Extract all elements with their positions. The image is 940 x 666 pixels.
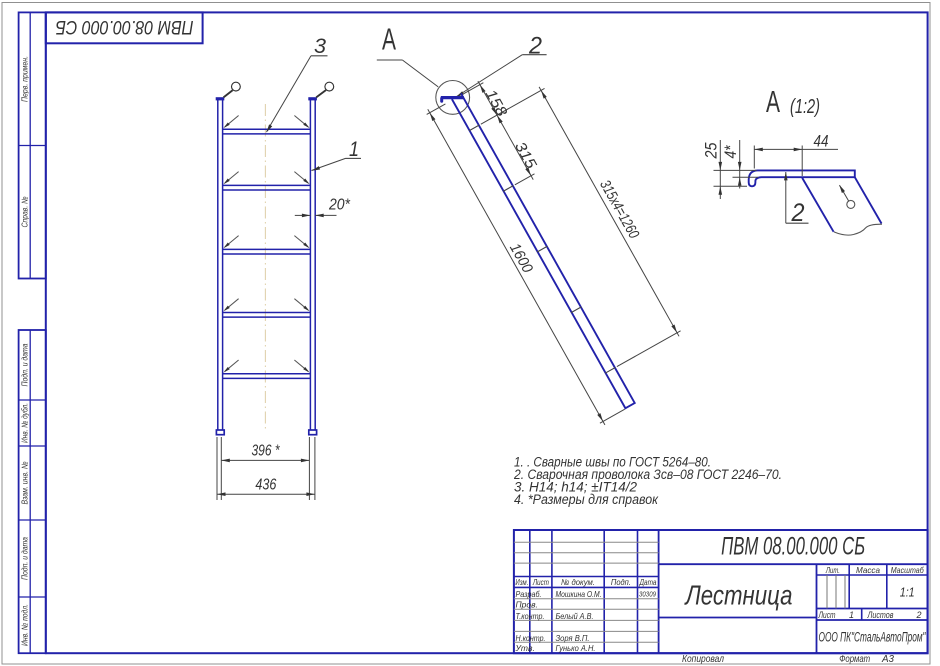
svg-text:Масса: Масса (856, 565, 880, 575)
svg-text:436: 436 (255, 477, 276, 494)
svg-text:Копировал: Копировал (682, 653, 724, 665)
svg-text:Разраб.: Разраб. (516, 589, 542, 599)
svg-text:1:1: 1:1 (900, 585, 915, 600)
svg-text:Лестница: Лестница (684, 580, 793, 611)
svg-text:Гунько А.Н.: Гунько А.Н. (556, 643, 596, 653)
svg-text:44: 44 (814, 132, 829, 151)
svg-text:Пров.: Пров. (516, 600, 538, 610)
svg-text:396 *: 396 * (252, 443, 281, 460)
svg-text:Подп.: Подп. (611, 577, 631, 587)
svg-text:ПВМ 08.00.000 СБ: ПВМ 08.00.000 СБ (55, 16, 193, 38)
svg-text:4*: 4* (721, 144, 740, 158)
svg-text:Изм.: Изм. (515, 577, 528, 587)
svg-text:Листов: Листов (867, 610, 894, 620)
svg-text:Инв. № подл.: Инв. № подл. (20, 604, 30, 646)
svg-text:Взам. инв. №: Взам. инв. № (20, 462, 30, 505)
svg-text:Мошкина О.М.: Мошкина О.М. (556, 589, 602, 599)
svg-text:А3: А3 (881, 653, 894, 665)
svg-text:Подп. и дата: Подп. и дата (20, 343, 30, 386)
svg-text:А: А (382, 22, 396, 57)
svg-text:Дата: Дата (639, 577, 657, 587)
svg-text:Лит.: Лит. (825, 565, 840, 575)
svg-text:Формат: Формат (839, 653, 870, 665)
svg-text:Т.контр.: Т.контр. (516, 611, 545, 621)
svg-text:2: 2 (528, 33, 542, 60)
svg-text:(1:2): (1:2) (790, 96, 820, 118)
svg-text:2: 2 (915, 610, 921, 620)
svg-text:Лист: Лист (818, 610, 836, 620)
svg-text:Зоря В.П.: Зоря В.П. (556, 633, 590, 643)
svg-text:Инв. № дубл.: Инв. № дубл. (20, 403, 30, 443)
svg-text:1: 1 (849, 610, 854, 620)
svg-text:Белый А.В.: Белый А.В. (556, 611, 594, 621)
svg-text:315: 315 (511, 139, 540, 172)
svg-text:158: 158 (482, 87, 511, 120)
svg-text:Подп. и дата: Подп. и дата (20, 537, 30, 580)
svg-text:25: 25 (702, 142, 721, 159)
svg-text:ООО ПК"СтальАвтоПром": ООО ПК"СтальАвтоПром" (819, 630, 927, 645)
svg-text:Утв.: Утв. (515, 643, 535, 653)
svg-text:Лист: Лист (532, 577, 549, 587)
svg-text:4. *Размеры для справок: 4. *Размеры для справок (514, 492, 659, 507)
svg-text:Н.контр.: Н.контр. (516, 633, 546, 643)
svg-text:3: 3 (314, 35, 326, 58)
svg-text:1600: 1600 (506, 240, 536, 276)
svg-text:315х4=1260: 315х4=1260 (596, 177, 642, 242)
svg-text:1: 1 (349, 138, 359, 161)
svg-text:Масштаб: Масштаб (891, 565, 925, 575)
svg-text:А: А (766, 84, 780, 119)
svg-text:20*: 20* (328, 197, 351, 214)
svg-text:30309: 30309 (639, 590, 657, 599)
svg-text:№ докум.: № докум. (561, 577, 595, 587)
svg-text:ПВМ 08.00.000 СБ: ПВМ 08.00.000 СБ (721, 533, 865, 561)
svg-text:Справ. №: Справ. № (20, 197, 30, 228)
svg-text:Перв. примен.: Перв. примен. (20, 56, 30, 102)
